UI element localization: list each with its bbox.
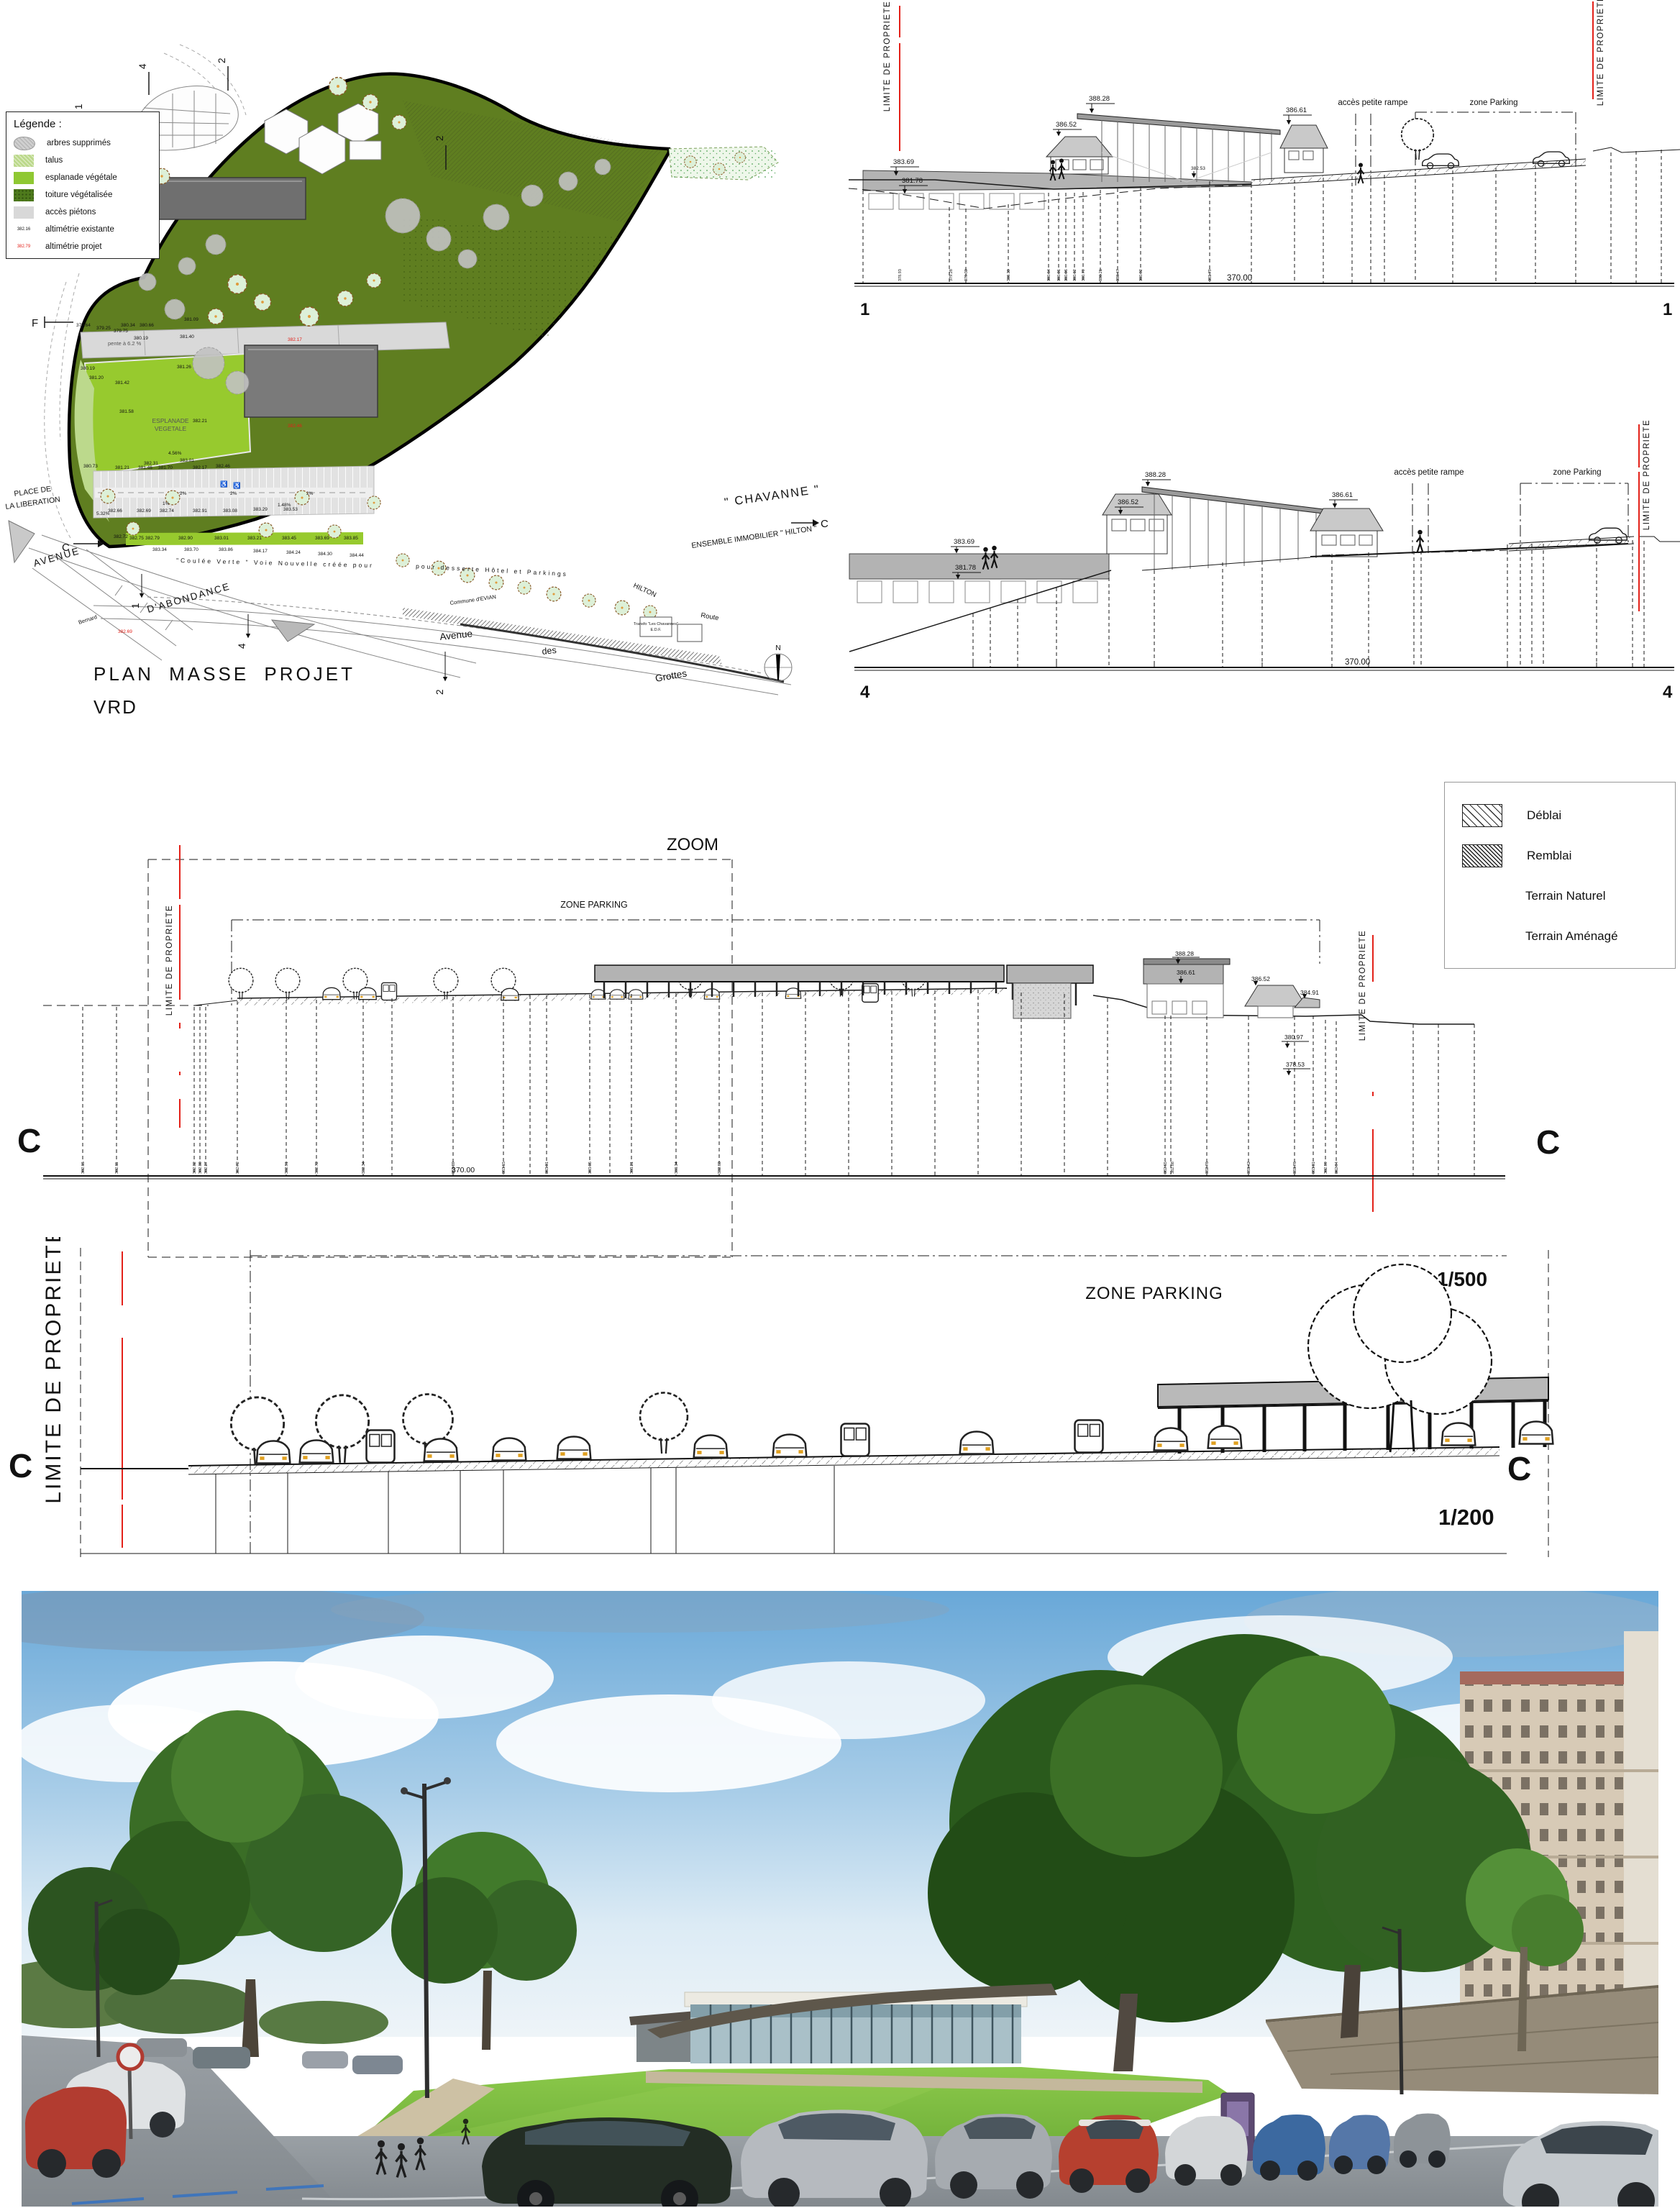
svg-text:382.79: 382.79	[145, 536, 160, 541]
svg-text:383.29: 383.29	[253, 507, 268, 512]
svg-text:383.76: 383.76	[1293, 1162, 1297, 1174]
svg-text:F: F	[32, 317, 38, 329]
wheelchair-icon: ♿	[220, 480, 228, 488]
svg-text:381.79: 381.79	[1208, 269, 1213, 281]
section-marker: C	[1507, 1450, 1531, 1487]
svg-text:381.20: 381.20	[89, 375, 104, 380]
property-limit-left: LIMITE DE PROPRIETE	[165, 845, 180, 1128]
svg-text:Commune d'EVIAN: Commune d'EVIAN	[449, 593, 496, 606]
wheelchair-icon: ♿	[233, 482, 241, 489]
svg-text:384.24: 384.24	[286, 550, 301, 555]
svg-text:2: 2	[434, 135, 445, 141]
section-length: 370.00	[1227, 274, 1252, 283]
svg-text:383.69: 383.69	[893, 158, 914, 166]
svg-text:380.66: 380.66	[140, 323, 154, 328]
svg-text:380.19: 380.19	[81, 366, 95, 371]
svg-text:1: 1	[73, 104, 84, 109]
right-buildings	[1143, 959, 1320, 1018]
section-length: 370.00	[1345, 658, 1370, 667]
svg-text:383.42: 383.42	[1247, 1162, 1251, 1174]
svg-text:LA LIBERATION: LA LIBERATION	[5, 495, 61, 511]
svg-text:383.86: 383.86	[219, 547, 233, 552]
svg-text:Route: Route	[700, 611, 719, 622]
svg-text:380.47: 380.47	[1116, 269, 1120, 281]
svg-text:381.78: 381.78	[955, 564, 976, 572]
svg-text:379.25: 379.25	[96, 326, 111, 331]
section-1-drawing: LIMITE DE PROPRIETE LIMITE DE PROPRIETE …	[849, 0, 1680, 331]
chavanne-annotation: " CHAVANNE " ENSEMBLE IMMOBILIER " HILTO…	[691, 483, 828, 550]
svg-text:381.26: 381.26	[177, 365, 191, 370]
scale-label: 1/200	[1438, 1505, 1494, 1530]
svg-text:382.46: 382.46	[216, 464, 230, 469]
svg-text:383.69: 383.69	[315, 536, 329, 541]
svg-text:2%: 2%	[306, 491, 314, 496]
north-label: N	[775, 644, 781, 652]
svg-text:"Coulée Verte " Voie Nou: "Coulée Verte " Voie Nouvelle créée pour	[176, 557, 374, 569]
svg-text:ZONE PARKING: ZONE PARKING	[560, 900, 628, 910]
north-compass: N	[764, 644, 792, 681]
svg-text:LIMITE DE PROPRIETE: LIMITE DE PROPRIETE	[883, 1, 892, 111]
svg-text:384.30: 384.30	[318, 552, 332, 557]
svg-text:382.91: 382.91	[193, 508, 207, 514]
svg-text:382.69: 382.69	[137, 508, 151, 514]
svg-text:381.78: 381.78	[902, 177, 923, 185]
svg-text:383.01: 383.01	[214, 536, 229, 541]
svg-text:382.17: 382.17	[193, 465, 207, 470]
svg-text:382.53: 382.53	[1191, 166, 1205, 171]
svg-text:381.70: 381.70	[158, 465, 173, 470]
svg-text:383.15: 383.15	[502, 1162, 506, 1174]
svg-text:Grottes: Grottes	[654, 667, 688, 684]
svg-text:381.46: 381.46	[138, 465, 152, 470]
svg-text:" CHAVANNE ": " CHAVANNE "	[723, 483, 821, 508]
section-marker: 1	[860, 300, 869, 319]
svg-text:383.34: 383.34	[675, 1162, 679, 1174]
svg-text:382.30: 382.30	[198, 1162, 203, 1174]
existing-altimetry-symbol: 382.16	[14, 224, 34, 236]
svg-text:380.21: 380.21	[1099, 269, 1103, 281]
legend-item: esplanade végétale	[14, 169, 152, 186]
svg-text:1: 1	[130, 603, 141, 608]
svg-text:382.72: 382.72	[315, 1162, 319, 1174]
svg-text:384.17: 384.17	[253, 549, 268, 554]
svg-text:379.28: 379.28	[949, 269, 954, 281]
svg-text:379.64: 379.64	[76, 323, 91, 328]
plan-legend-title: Légende :	[14, 118, 152, 130]
svg-text:380.19: 380.19	[134, 336, 148, 341]
legend-item: Déblai	[1462, 795, 1658, 836]
svg-text:zone Parking: zone Parking	[1553, 468, 1601, 477]
section-length: 370.00	[452, 1166, 475, 1174]
svg-text:5.32%: 5.32%	[96, 511, 110, 516]
svg-text:382.74: 382.74	[160, 508, 174, 514]
svg-text:1%: 1%	[163, 501, 170, 506]
svg-text:388.28: 388.28	[1089, 95, 1110, 103]
section-marker: C	[1536, 1123, 1560, 1161]
section-4-drawing: 383.69 381.78 386.52 388.28 386.61 accès…	[849, 403, 1680, 705]
photo-rendering	[22, 1591, 1658, 2207]
svg-text:383.01: 383.01	[1312, 1162, 1316, 1174]
svg-text:382.76: 382.76	[1205, 1162, 1210, 1174]
svg-text:zone Parking: zone Parking	[1469, 99, 1517, 107]
svg-text:380.79: 380.79	[1082, 269, 1086, 281]
terrain	[849, 147, 1680, 283]
talus-swatch	[14, 155, 34, 167]
building-lower-slab: 382.17 382.46	[245, 337, 378, 429]
svg-text:Avenue: Avenue	[439, 628, 473, 642]
remblai-swatch	[1462, 844, 1502, 867]
deblai-swatch	[1462, 804, 1502, 827]
svg-text:accès petite rampe: accès petite rampe	[1394, 468, 1464, 477]
svg-text:383.70: 383.70	[184, 547, 198, 552]
zoom-label: ZOOM	[667, 835, 718, 854]
svg-text:381.58: 381.58	[119, 409, 134, 414]
svg-text:381.40: 381.40	[180, 334, 194, 339]
svg-text:379.30: 379.30	[964, 269, 969, 281]
section-marker: C	[9, 1447, 32, 1484]
svg-text:379.75: 379.75	[114, 329, 128, 334]
legend-item: Remblai	[1462, 836, 1658, 876]
transfo-label-2: E.D.F.	[651, 628, 662, 632]
svg-text:382.91: 382.91	[285, 1162, 289, 1174]
svg-text:380.92: 380.92	[1139, 269, 1143, 281]
section-marker: C	[17, 1122, 41, 1159]
svg-text:Bernard: Bernard	[78, 613, 98, 626]
svg-text:383.08: 383.08	[223, 508, 237, 514]
esplanade-label-1: ESPLANADE	[152, 417, 188, 424]
esplanade-label-2: VEGETALE	[155, 425, 187, 432]
property-limit-right: LIMITE DE PROPRIETE	[1359, 930, 1373, 1212]
legend-item: toiture végétalisée	[14, 186, 152, 204]
svg-text:ZONE PARKING: ZONE PARKING	[1085, 1284, 1223, 1303]
project-altimetry-symbol: 382.79	[14, 241, 34, 253]
baseline: 370.00 4 4	[854, 658, 1674, 702]
svg-text:382.63: 382.63	[718, 1162, 722, 1174]
svg-text:accès petite rampe: accès petite rampe	[1338, 99, 1407, 107]
svg-text:382.69: 382.69	[118, 629, 132, 634]
legend-item: accès piétons	[14, 204, 152, 221]
svg-text:380.64: 380.64	[1047, 269, 1051, 281]
svg-text:380.39: 380.39	[1007, 269, 1011, 281]
svg-text:2: 2	[434, 689, 445, 695]
legend-item: arbres supprimés	[14, 134, 152, 152]
section-marker: 4	[860, 683, 870, 702]
transfo-label: Transfo "Les Chavannes"	[634, 622, 678, 626]
svg-text:380.06: 380.06	[1064, 269, 1069, 281]
svg-text:4.56%: 4.56%	[168, 451, 182, 456]
svg-text:1.48%: 1.48%	[278, 503, 291, 508]
svg-text:LIMITE DE PROPRIETE: LIMITE DE PROPRIETE	[165, 905, 174, 1016]
svg-text:382.72: 382.72	[114, 534, 128, 539]
svg-text:382.65: 382.65	[1164, 1162, 1168, 1174]
spot-red: 382.17	[288, 337, 302, 342]
svg-text:384.91: 384.91	[1300, 989, 1319, 996]
svg-text:382.27: 382.27	[204, 1162, 209, 1174]
svg-text:382.94: 382.94	[1335, 1162, 1339, 1174]
svg-text:386.52: 386.52	[1056, 121, 1077, 129]
section-marker: 1	[1663, 300, 1672, 319]
baseline: 378.93 379.28 379.30 380.39 380.64 380.0…	[854, 269, 1674, 319]
svg-text:388.28: 388.28	[1145, 471, 1166, 479]
cut-fill-legend: Déblai Remblai Terrain Naturel Terrain A…	[1444, 782, 1676, 969]
svg-text:384.44: 384.44	[350, 553, 364, 558]
buildings	[849, 487, 1383, 603]
pedestrian-swatch	[14, 206, 34, 219]
svg-text:382.11: 382.11	[115, 1162, 119, 1174]
svg-text:382.15: 382.15	[81, 1162, 86, 1174]
svg-text:383.45: 383.45	[282, 536, 296, 541]
svg-text:386.61: 386.61	[1332, 491, 1353, 499]
baseline: 382.15 382.11 382.32 382.30 382.27 382.7…	[43, 1162, 1505, 1179]
svg-text:LIMITE DE PROPRIETE: LIMITE DE PROPRIETE	[1643, 419, 1651, 530]
svg-text:383.69: 383.69	[954, 538, 974, 546]
section-marker-c: C	[821, 518, 828, 530]
svg-text:380.34: 380.34	[121, 323, 135, 328]
svg-text:383.21: 383.21	[247, 536, 262, 541]
svg-text:380.12: 380.12	[1073, 269, 1077, 281]
legend-item: 382.16altimétrie existante	[14, 221, 152, 238]
pavilion-building	[629, 1984, 1057, 2063]
svg-text:382.99: 382.99	[1324, 1162, 1328, 1174]
svg-text:382.90: 382.90	[178, 536, 193, 541]
svg-text:2: 2	[216, 58, 227, 63]
svg-text:D'ABONDANCE: D'ABONDANCE	[146, 580, 232, 614]
svg-text:HILTON: HILTON	[632, 582, 658, 599]
svg-text:des: des	[542, 645, 557, 657]
svg-text:382.88: 382.88	[1171, 1162, 1175, 1174]
svg-text:386.52: 386.52	[1118, 498, 1138, 506]
svg-text:LIMITE DE PROPRIETE: LIMITE DE PROPRIETE	[1359, 930, 1367, 1041]
svg-text:381.21: 381.21	[115, 465, 129, 470]
svg-text:380.01: 380.01	[1057, 269, 1062, 281]
plan-title: PLAN MASSE PROJET	[93, 663, 355, 685]
svg-text:386.61: 386.61	[1286, 106, 1307, 114]
svg-text:388.28: 388.28	[1175, 950, 1194, 957]
svg-text:383.34: 383.34	[152, 547, 167, 552]
section-c-200-drawing: LIMITE DE PROPRIETE ZONE PARKING	[0, 1237, 1680, 1582]
property-limit: LIMITE DE PROPRIETE	[42, 1237, 122, 1548]
section-marker: 4	[1663, 683, 1673, 702]
svg-text:383.21: 383.21	[630, 1162, 634, 1174]
svg-text:2%: 2%	[180, 491, 187, 496]
plan-subtitle: VRD	[93, 696, 137, 718]
svg-text:383.35: 383.35	[588, 1162, 593, 1174]
svg-text:378.53: 378.53	[1286, 1061, 1305, 1068]
legend-item: Terrain Naturel	[1462, 876, 1658, 916]
terrain	[81, 1447, 1507, 1554]
section-c-500-drawing: ZOOM LIMITE DE PROPRIETE ZONE PARKING	[0, 820, 1680, 1295]
svg-text:383.01: 383.01	[545, 1162, 549, 1174]
green-roof-swatch	[14, 189, 34, 201]
baseline-elevations: 382.15 382.11 382.32 382.30 382.27 382.7…	[81, 1162, 1339, 1174]
svg-text:383.01: 383.01	[180, 458, 194, 463]
baseline-elevations: 378.93 379.28 379.30 380.39 380.64 380.0…	[898, 269, 1213, 281]
svg-text:ENSEMBLE IMMOBILIER " HILTON ": ENSEMBLE IMMOBILIER " HILTON "	[691, 524, 818, 550]
svg-text:382.72: 382.72	[236, 1162, 240, 1174]
svg-text:LIMITE DE PROPRIETE: LIMITE DE PROPRIETE	[42, 1237, 65, 1504]
spot-red: 382.46	[288, 424, 302, 429]
site-plan-drawing: pente à 6.2 % ESPLANADE VEGETALE 382.17 …	[0, 0, 863, 726]
svg-text:LIMITE DE PROPRIETE: LIMITE DE PROPRIETE	[1597, 0, 1605, 106]
svg-text:2%: 2%	[230, 491, 237, 496]
svg-text:382.34: 382.34	[362, 1162, 366, 1174]
building-upper-slab	[149, 178, 306, 219]
legend-item: talus	[14, 152, 152, 169]
svg-text:4: 4	[237, 643, 247, 649]
presentation-sheet: pente à 6.2 % ESPLANADE VEGETALE 382.17 …	[0, 0, 1680, 2208]
svg-text:382.32: 382.32	[193, 1162, 197, 1174]
legend-item: 382.79altimétrie projet	[14, 238, 152, 255]
svg-text:382.21: 382.21	[193, 419, 207, 424]
svg-text:4: 4	[137, 63, 148, 69]
pente-label: pente à 6.2 %	[108, 340, 142, 347]
svg-text:386.61: 386.61	[1177, 969, 1195, 976]
zoom-extent-box	[148, 859, 732, 1257]
svg-text:AVENUE: AVENUE	[32, 545, 81, 569]
svg-text:380.97: 380.97	[1284, 1034, 1303, 1041]
esplanade-swatch	[14, 172, 34, 184]
svg-text:382.75: 382.75	[129, 536, 144, 541]
svg-text:383.85: 383.85	[344, 536, 358, 541]
property-limit: LIMITE DE PROPRIETE	[1639, 419, 1651, 611]
svg-text:381.09: 381.09	[184, 317, 198, 322]
svg-text:381.42: 381.42	[115, 380, 129, 386]
svg-text:378.93: 378.93	[898, 269, 903, 281]
removed-tree-swatch	[14, 137, 35, 150]
svg-text:383.53: 383.53	[283, 507, 298, 512]
svg-text:380.73: 380.73	[83, 464, 98, 469]
plan-legend: Légende : arbres supprimés talus esplana…	[6, 111, 160, 259]
legend-item: Terrain Aménagé	[1462, 916, 1658, 957]
svg-text:C: C	[62, 542, 70, 554]
svg-text:386.52: 386.52	[1251, 975, 1270, 982]
svg-text:382.66: 382.66	[108, 508, 122, 514]
